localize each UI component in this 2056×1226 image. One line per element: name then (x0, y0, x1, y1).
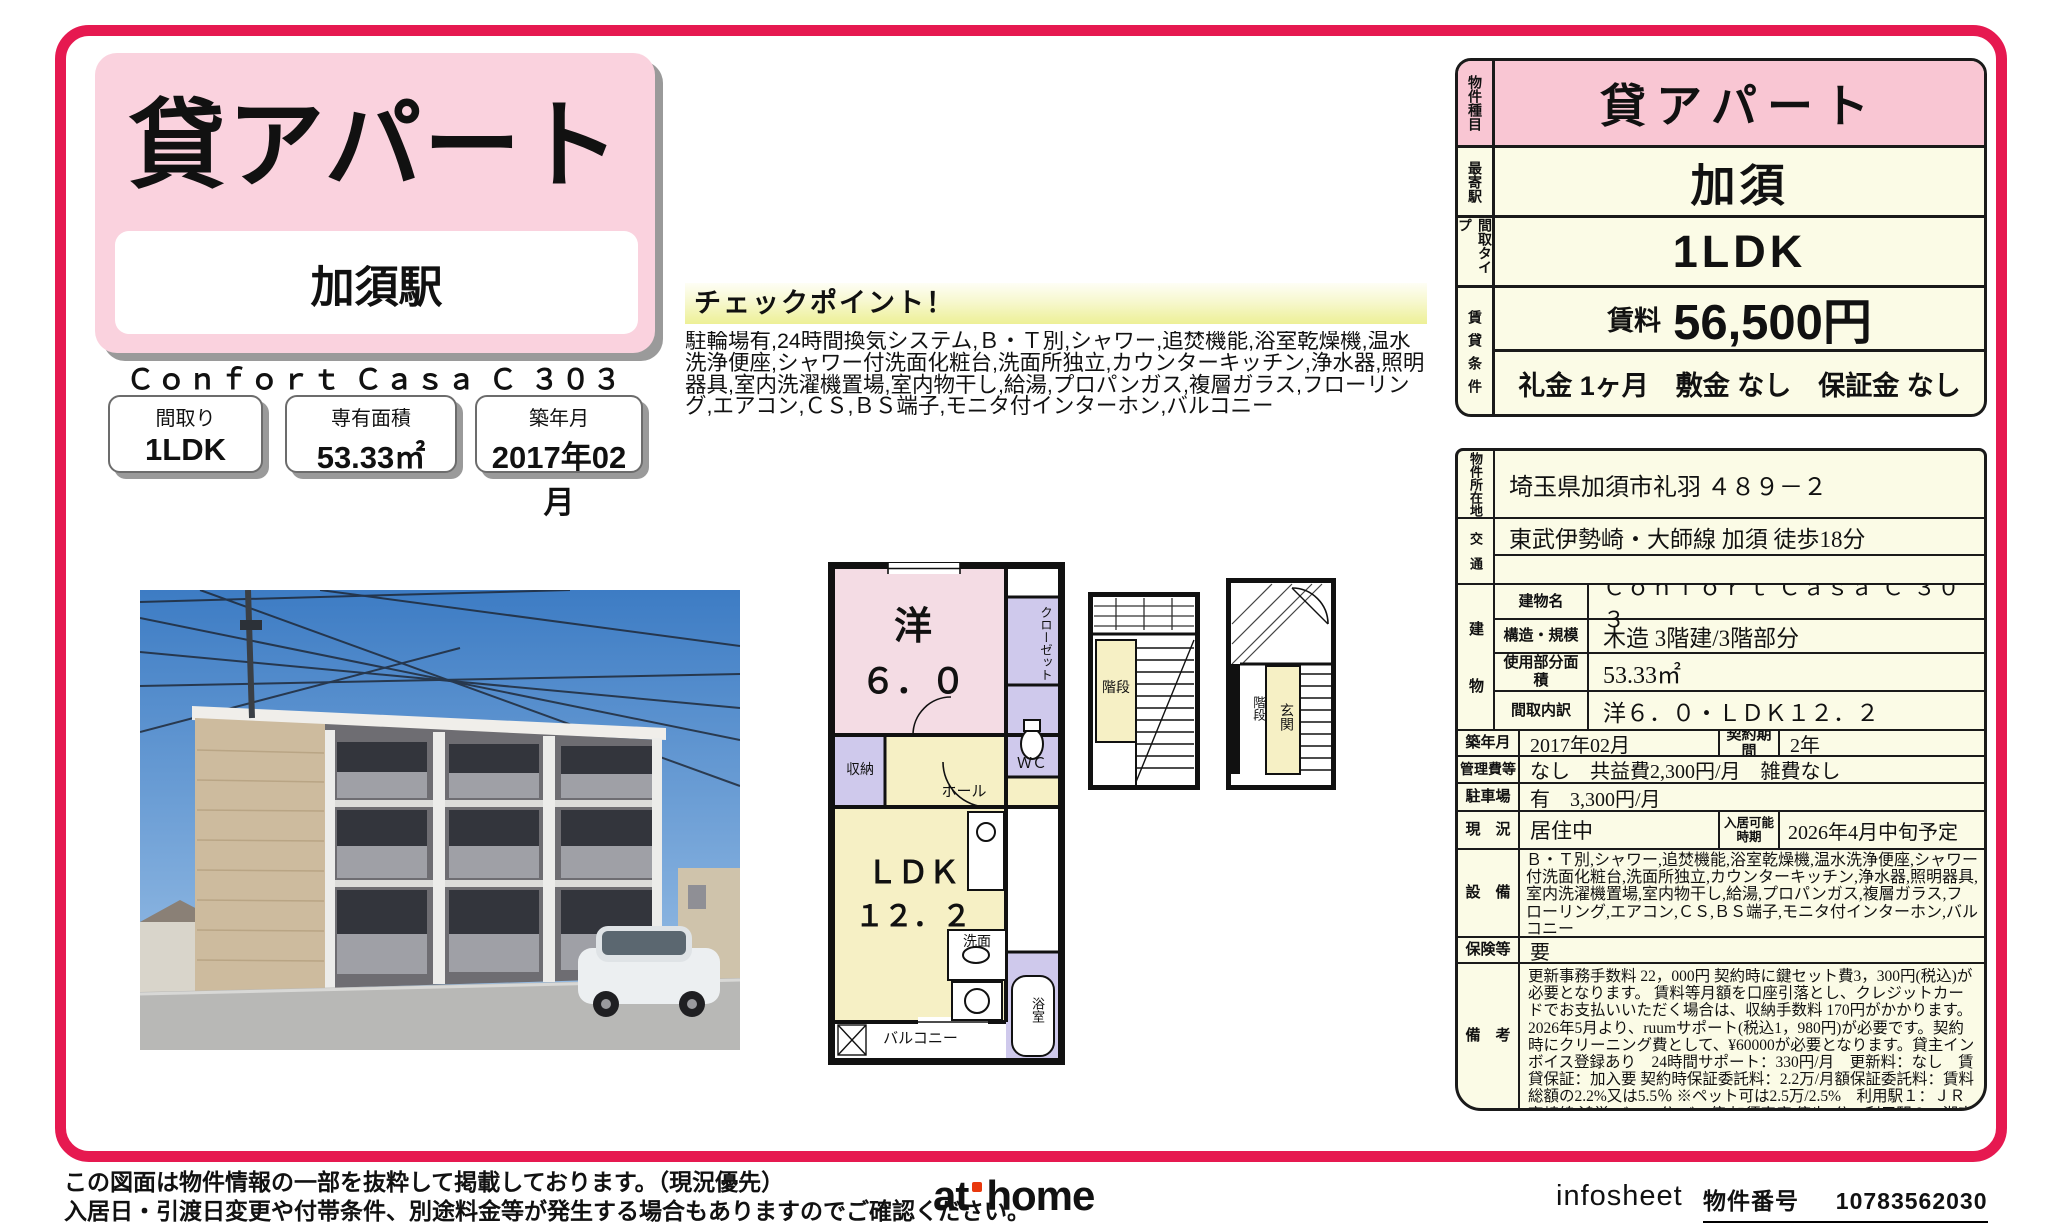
station-value: 加須 (1495, 148, 1984, 215)
wall-block (1230, 664, 1240, 774)
label-wc: ＷＣ (1008, 756, 1056, 772)
transport-text: 東武伊勢崎・大師線 加須 徒歩18分 (1509, 520, 1866, 554)
label-text: 物件種目 (1465, 75, 1485, 131)
label-text: 間取タイプ (1455, 218, 1495, 285)
price-table: 物件種目 貸アパート 最寄駅 加須 間取タイプ 1LDK 賃貸条件 賃料 56,… (1455, 58, 1987, 417)
transport-empty (1495, 556, 1984, 583)
rent-terms-cells: 賃料 56,500円 礼金 1ヶ月 敷金 なし 保証金 なし (1495, 288, 1984, 414)
property-type-label: 物件種目 (1458, 61, 1495, 145)
floorplan-main-unit: 洋 ６．０ クローゼット ＷＣ 収納 ホール ＬＤＫ １２．２ 洗面 浴室 バル… (828, 562, 1065, 1065)
parking-value: 有 3,300円/月 (1520, 784, 1984, 810)
label-western-size: ６．０ (843, 664, 983, 701)
address-value: 埼玉県加須市礼羽 ４８９－２ (1495, 451, 1984, 517)
status-label: 現 況 (1458, 812, 1520, 848)
building-photo (140, 590, 740, 1050)
summary-value: 1LDK (110, 432, 261, 468)
summary-box-built: 築年月 2017年02月 (475, 395, 643, 473)
building-name-label: 建物名 (1495, 585, 1589, 618)
rent-label: 賃料 (1607, 299, 1661, 338)
insurance-value: 要 (1520, 938, 1984, 962)
area-value: 53.33㎡ (1589, 654, 1984, 690)
building-photo-art (140, 590, 740, 1050)
property-number-label: 物件番号 (1703, 1188, 1799, 1214)
disclaimer-line2: 入居日・引渡日変更や付帯条件、別途料金等が発生する場合もありますのでご確認くださ… (64, 1192, 1030, 1226)
row-layout-detail: 間取内訳 洋６．０・ＬＤＫ１２．２ (1495, 692, 1984, 729)
row-building-name: 建物名 Ｃｏｎｆｏｒｔ Ｃａｓａ Ｃ ３０３ (1495, 585, 1984, 620)
layout-value: 1LDK (1495, 218, 1984, 285)
building-name-value: Ｃｏｎｆｏｒｔ Ｃａｓａ Ｃ ３０３ (1589, 585, 1984, 618)
checkpoint-title: チェックポイント！ (685, 283, 1427, 324)
layout-label: 間取タイプ (1458, 218, 1495, 285)
infosheet-label: infosheet (1556, 1180, 1683, 1213)
station-label: 最寄駅 (1458, 148, 1495, 215)
transport-label: 交通 (1458, 519, 1495, 583)
movein-label: 入居可能時期 (1718, 812, 1780, 848)
summary-label: 築年月 (477, 402, 641, 431)
property-number-value: 10783562030 (1836, 1188, 1988, 1214)
label-text: 建物 (1465, 621, 1486, 731)
detail-table: 物件所在地 埼玉県加須市礼羽 ４８９－２ 交通 東武伊勢崎・大師線 加須 徒歩1… (1455, 448, 1987, 1111)
structure-label: 構造・規模 (1495, 620, 1589, 652)
label-text: 賃貸条件 (1465, 310, 1485, 402)
area-label: 使用部分面積 (1495, 654, 1589, 690)
floorplan-stairwell-entrance: 玄関 階段 (1226, 578, 1336, 790)
rent-value: 56,500円 (1673, 283, 1872, 354)
summary-label: 専有面積 (287, 402, 455, 431)
building-label: 建物 (1458, 585, 1495, 729)
checkpoint-text: 駐輪場有,24時間換気システム,Ｂ・Ｔ別,シャワー,追焚機能,浴室乾燥機,温水洗… (685, 331, 1427, 441)
row-nearest-station: 最寄駅 加須 (1458, 148, 1984, 218)
label-ldk: ＬＤＫ (838, 857, 988, 890)
label-stairs-entrance: 階段 (1244, 678, 1264, 738)
label-balcony: バルコニー (858, 1031, 983, 1047)
summary-box-layout: 間取り 1LDK (108, 395, 263, 473)
notes-label: 備 考 (1458, 964, 1520, 1108)
label-bath: 浴室 (1022, 982, 1044, 1038)
building-name-heading: Ｃｏｎｆｏｒｔ Ｃａｓａ Ｃ ３０３ (95, 358, 655, 398)
summary-value: 2017年02月 (477, 432, 641, 522)
summary-box-area: 専有面積 53.33㎡ (285, 395, 457, 473)
property-type-value: 貸アパート (1495, 61, 1984, 145)
athome-logo: at home (933, 1172, 1094, 1220)
equipment-label: 設 備 (1458, 850, 1520, 936)
label-western-room: 洋 (843, 608, 983, 648)
contract-value: 2年 (1780, 731, 1984, 755)
station-box: 加須駅 (115, 231, 638, 334)
row-building: 建物 建物名 Ｃｏｎｆｏｒｔ Ｃａｓａ Ｃ ３０３ 構造・規模 木造 3階建/3… (1458, 585, 1984, 731)
row-insurance: 保険等 要 (1458, 938, 1984, 964)
row-layout-type: 間取タイプ 1LDK (1458, 218, 1984, 288)
row-structure: 構造・規模 木造 3階建/3階部分 (1495, 620, 1984, 654)
label-text: 交通 (1466, 532, 1485, 582)
label-text: 物件所在地 (1466, 452, 1485, 517)
summary-label: 間取り (110, 402, 261, 431)
floorplan-stairwell-mid: 階段 (1088, 592, 1200, 790)
label-hall: ホール (923, 784, 1005, 800)
movein-value: 2026年4月中旬予定 (1780, 812, 1984, 848)
status-value: 居住中 (1520, 812, 1718, 848)
athome-logo-at: at (933, 1172, 968, 1220)
contract-label: 契約期間 (1718, 731, 1780, 755)
athome-logo-dot-icon (972, 1182, 982, 1192)
notes-value: 更新事務手数料 22，000円 契約時に鍵セット費3，300円(税込)が必要とな… (1520, 964, 1984, 1108)
terms-label: 賃貸条件 (1458, 288, 1495, 414)
label-stairs-mid: 階段 (1096, 680, 1136, 695)
structure-value: 木造 3階建/3階部分 (1589, 620, 1984, 652)
row-status: 現 況 居住中 入居可能時期 2026年4月中旬予定 (1458, 812, 1984, 850)
summary-value: 53.33㎡ (287, 432, 455, 477)
layout-detail-label: 間取内訳 (1495, 692, 1589, 729)
label-ldk-size: １２．２ (838, 902, 988, 932)
athome-logo-home: home (986, 1172, 1094, 1220)
built-label: 築年月 (1458, 731, 1520, 755)
transport-value: 東武伊勢崎・大師線 加須 徒歩18分 (1495, 519, 1984, 556)
row-used-area: 使用部分面積 53.33㎡ (1495, 654, 1984, 692)
built-value: 2017年02月 (1520, 731, 1718, 755)
terms-value: 礼金 1ヶ月 敷金 なし 保証金 なし (1518, 364, 1961, 403)
room-western (835, 569, 1006, 735)
row-built: 築年月 2017年02月 契約期間 2年 (1458, 731, 1984, 757)
row-fees: 管理費等 なし 共益費2,300円/月 雑費なし (1458, 757, 1984, 784)
address-label: 物件所在地 (1458, 451, 1495, 517)
label-entrance: 玄関 (1272, 682, 1294, 752)
fees-label: 管理費等 (1458, 757, 1520, 782)
row-property-type: 物件種目 貸アパート (1458, 61, 1984, 148)
row-transport: 交通 東武伊勢崎・大師線 加須 徒歩18分 (1458, 519, 1984, 585)
building-rows: 建物名 Ｃｏｎｆｏｒｔ Ｃａｓａ Ｃ ３０３ 構造・規模 木造 3階建/3階部分… (1495, 585, 1984, 729)
parking-label: 駐車場 (1458, 784, 1520, 810)
insurance-label: 保険等 (1458, 938, 1520, 962)
station-name: 加須駅 (311, 251, 443, 315)
property-type-title: 貸アパート (95, 53, 655, 229)
row-parking: 駐車場 有 3,300円/月 (1458, 784, 1984, 812)
row-equipment: 設 備 Ｂ・Ｔ別,シャワー,追焚機能,浴室乾燥機,温水洗浄便座,シャワー付洗面化… (1458, 850, 1984, 938)
layout-detail-value: 洋６．０・ＬＤＫ１２．２ (1589, 692, 1984, 729)
property-number: 物件番号 10783562030 (1703, 1182, 1988, 1223)
fees-value: なし 共益費2,300円/月 雑費なし (1520, 757, 1984, 782)
rent-row: 賃料 56,500円 (1495, 288, 1984, 352)
equipment-value: Ｂ・Ｔ別,シャワー,追焚機能,浴室乾燥機,温水洗浄便座,シャワー付洗面化粧台,洗… (1520, 850, 1984, 936)
label-text: 最寄駅 (1465, 161, 1485, 203)
label-washroom: 洗面 (948, 934, 1006, 949)
row-rent-terms: 賃貸条件 賃料 56,500円 礼金 1ヶ月 敷金 なし 保証金 なし (1458, 288, 1984, 414)
label-storage: 収納 (836, 762, 884, 777)
row-notes: 備 考 更新事務手数料 22，000円 契約時に鍵セット費3，300円(税込)が… (1458, 964, 1984, 1108)
label-closet: クローゼット (1010, 604, 1054, 682)
property-type-banner: 貸アパート 加須駅 (95, 53, 655, 353)
transport-cells: 東武伊勢崎・大師線 加須 徒歩18分 (1495, 519, 1984, 583)
row-address: 物件所在地 埼玉県加須市礼羽 ４８９－２ (1458, 451, 1984, 519)
terms-row: 礼金 1ヶ月 敷金 なし 保証金 なし (1495, 352, 1984, 414)
